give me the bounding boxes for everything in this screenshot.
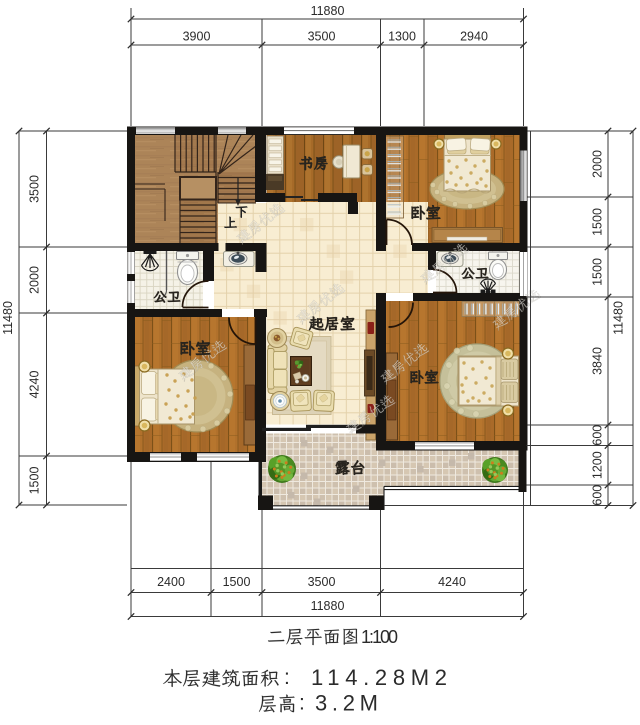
svg-text:11480: 11480 bbox=[1, 301, 15, 335]
svg-text::: : bbox=[284, 666, 290, 689]
svg-text::: : bbox=[299, 692, 305, 715]
svg-text:2400: 2400 bbox=[157, 575, 185, 589]
svg-text:2000: 2000 bbox=[28, 266, 42, 294]
svg-text:1200: 1200 bbox=[591, 451, 605, 479]
svg-text:1500: 1500 bbox=[223, 575, 251, 589]
svg-text:4240: 4240 bbox=[28, 371, 42, 399]
svg-text:1500: 1500 bbox=[591, 258, 605, 286]
svg-text:114.28M2: 114.28M2 bbox=[311, 665, 447, 690]
svg-text:3500: 3500 bbox=[308, 30, 336, 44]
svg-text:11880: 11880 bbox=[311, 599, 345, 613]
svg-text:11480: 11480 bbox=[612, 301, 626, 335]
svg-text:1500: 1500 bbox=[591, 208, 605, 236]
svg-text:3840: 3840 bbox=[591, 347, 605, 375]
svg-text:11880: 11880 bbox=[311, 4, 345, 18]
svg-text:1300: 1300 bbox=[388, 30, 416, 44]
svg-text:600: 600 bbox=[591, 485, 605, 506]
svg-text:2000: 2000 bbox=[591, 150, 605, 178]
svg-text:2940: 2940 bbox=[460, 30, 488, 44]
svg-text:4240: 4240 bbox=[438, 575, 466, 589]
svg-text:3900: 3900 bbox=[183, 30, 211, 44]
svg-text:3.2M: 3.2M bbox=[315, 691, 378, 716]
svg-text:3500: 3500 bbox=[308, 575, 336, 589]
svg-text:600: 600 bbox=[591, 425, 605, 446]
svg-text:1:100: 1:100 bbox=[361, 627, 398, 647]
svg-text:1500: 1500 bbox=[28, 467, 42, 495]
svg-text:3500: 3500 bbox=[28, 175, 42, 203]
